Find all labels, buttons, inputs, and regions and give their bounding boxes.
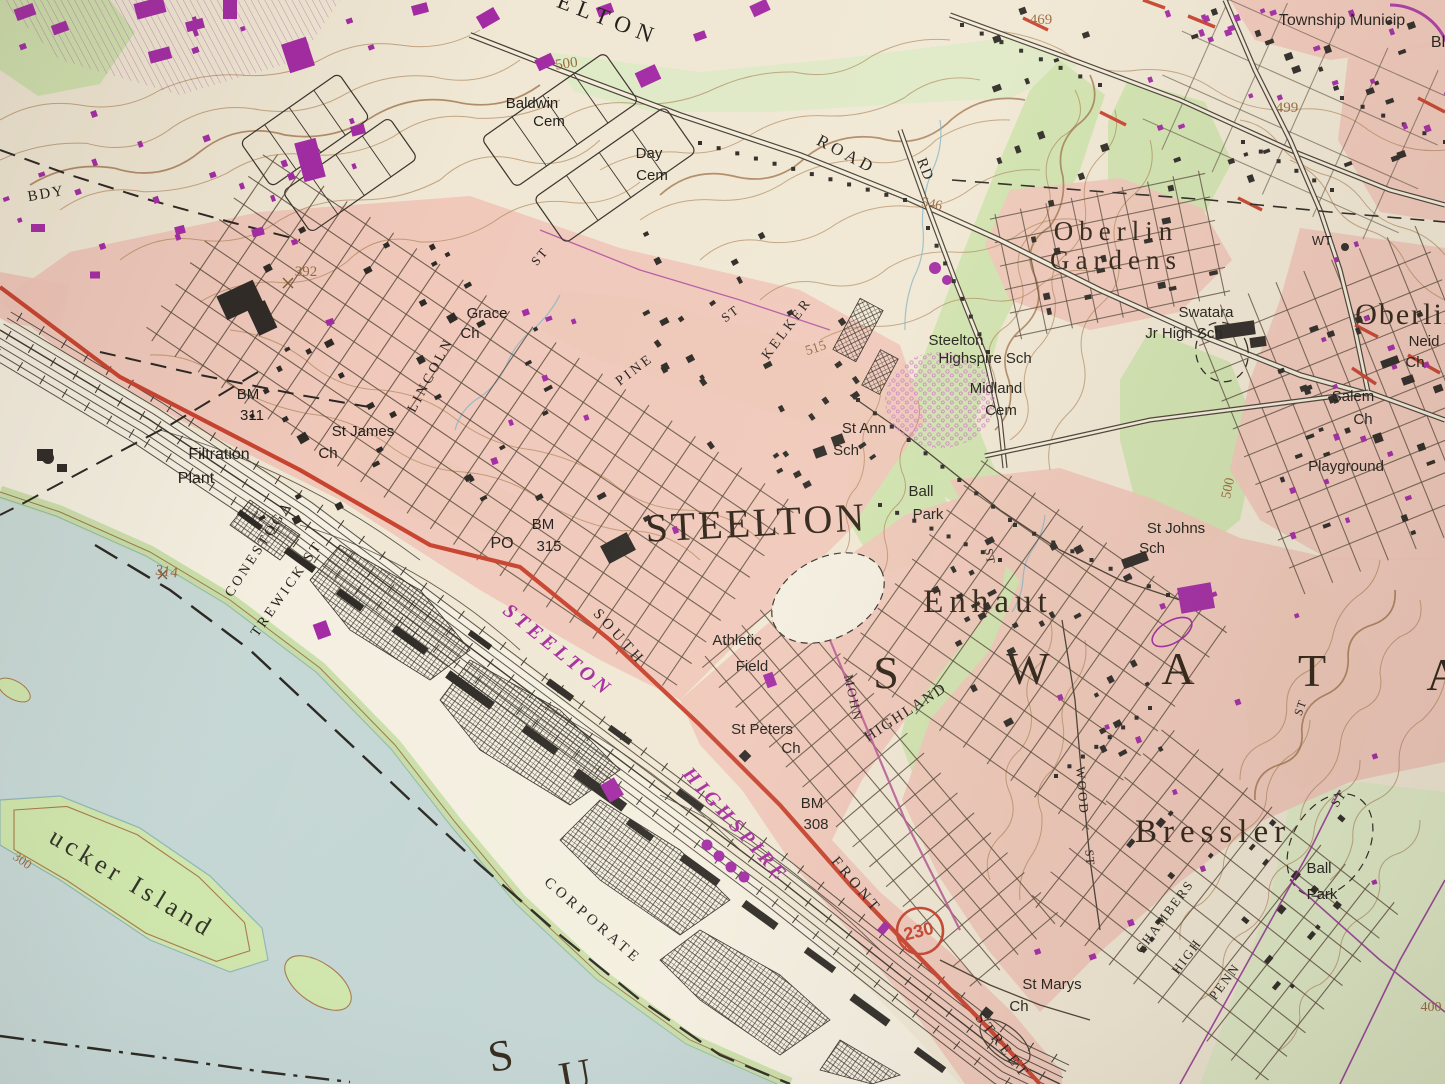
map-label: Steelton — [928, 332, 983, 349]
map-label: Ch — [1353, 411, 1372, 428]
map-label: 308 — [803, 816, 828, 833]
map-label: Baldwin — [506, 95, 559, 112]
map-label: Grace — [467, 305, 508, 322]
map-label: Sch — [833, 442, 859, 459]
map-label: Ball — [908, 483, 933, 500]
map-label: ST — [1082, 849, 1097, 866]
map-label: St Marys — [1022, 976, 1081, 993]
map-label: Ch — [460, 325, 479, 342]
map-label: Ch — [1405, 354, 1424, 371]
map-label: St James — [332, 423, 395, 440]
map-label: 315 — [536, 538, 561, 555]
map-label: Oberlin — [1355, 298, 1445, 331]
map-label: BM — [532, 516, 555, 533]
map-label: Jr High Sch — [1145, 325, 1223, 342]
map-label: Swatara — [1178, 304, 1234, 321]
map-canvas: 230 STEELTONSWATAEnhautBresslerOberlinGa… — [0, 0, 1445, 1084]
map-label: 314 — [154, 563, 179, 582]
map-label: 392 — [295, 264, 318, 280]
map-label: Highspire Sch — [938, 350, 1031, 367]
map-label: ST — [982, 547, 999, 565]
map-label: Field — [736, 658, 769, 675]
map-label: Ch — [781, 740, 800, 757]
map-label: Salem — [1332, 388, 1375, 405]
topo-map-photo: 230 STEELTONSWATAEnhautBresslerOberlinGa… — [0, 0, 1445, 1084]
map-label: Enhaut — [923, 584, 1052, 620]
map-label: Playground — [1308, 458, 1384, 475]
map-label: W — [1006, 643, 1050, 694]
map-label: Bl — [1431, 34, 1445, 51]
map-label: 469 — [1030, 12, 1053, 28]
map-label: T — [1298, 645, 1326, 696]
map-label: BM — [237, 386, 260, 403]
map-label: Cem — [985, 402, 1017, 419]
map-label: Park — [1307, 886, 1338, 903]
map-label: St Peters — [731, 721, 793, 738]
map-label: Cem — [636, 167, 668, 184]
map-label: A — [1426, 649, 1445, 700]
map-label: 499 — [1276, 100, 1299, 116]
map-label: Neid — [1409, 333, 1440, 350]
map-label: Filtration — [188, 446, 249, 463]
map-label: A — [1161, 643, 1194, 694]
map-label: Athletic — [712, 632, 762, 649]
map-label: Cem — [533, 113, 565, 130]
map-label: Ball — [1306, 860, 1331, 877]
map-label: S — [873, 647, 899, 698]
map-label: St Johns — [1147, 520, 1205, 537]
map-label: 311 — [240, 407, 264, 424]
map-label: Bressler — [1135, 814, 1291, 850]
map-label: Midland — [970, 380, 1023, 397]
map-label: Township Municip — [1279, 12, 1405, 29]
map-label: 500 — [554, 55, 579, 74]
map-label: Ch — [1009, 998, 1028, 1015]
map-label: Park — [913, 506, 944, 523]
map-label: Gardens — [1050, 245, 1182, 275]
map-label: Ch — [318, 445, 337, 462]
map-label: PO — [490, 535, 513, 552]
map-label: Plant — [178, 470, 215, 487]
map-label: WT — [1312, 233, 1332, 248]
map-label: BM — [801, 795, 824, 812]
map-label: Day — [636, 145, 663, 162]
map-label: Oberlin — [1054, 216, 1178, 246]
map-label: Sch — [1139, 540, 1165, 557]
map-label: 400 — [1421, 1000, 1442, 1015]
map-label: St Ann — [842, 420, 886, 437]
